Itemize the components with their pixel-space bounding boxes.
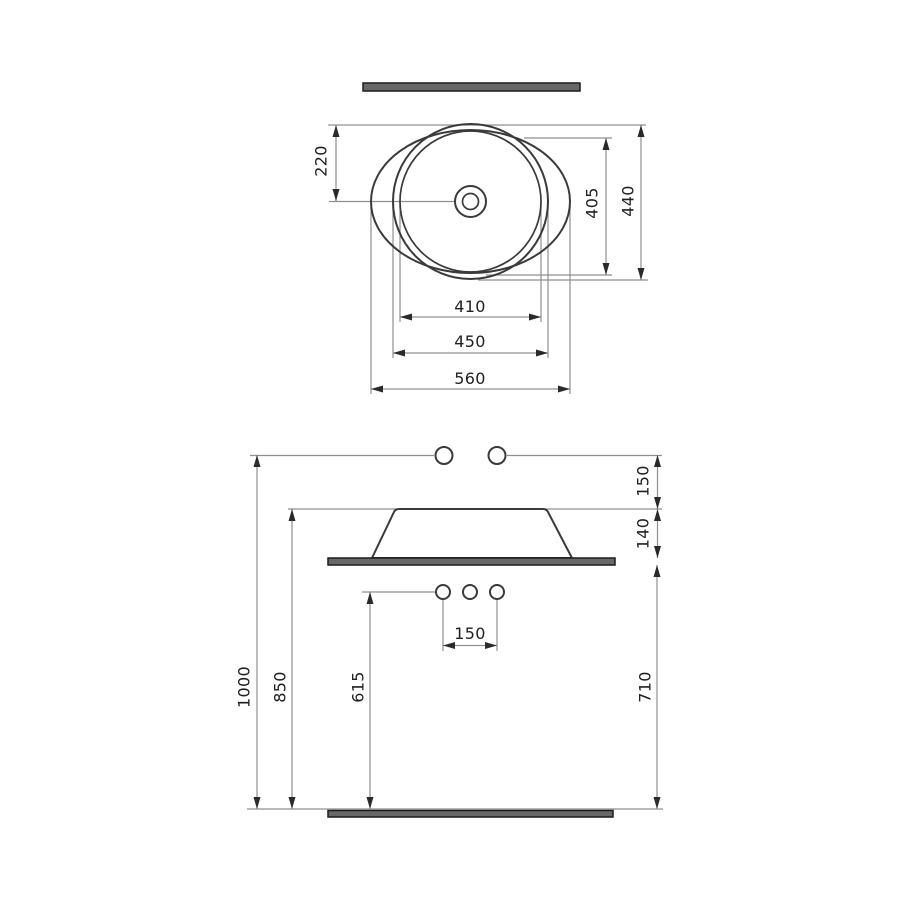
- drain-hole: [463, 194, 479, 210]
- floor-bar: [328, 811, 613, 818]
- dim-label-560: 560: [454, 369, 485, 388]
- tap-hole-center: [463, 585, 477, 599]
- dim-label-1000: 1000: [235, 666, 254, 708]
- washbasin-dimension-drawing: 220 405 440 410: [0, 0, 900, 900]
- technical-drawing-sheet: 220 405 440 410: [0, 0, 900, 900]
- dim-1000: 1000: [235, 455, 261, 809]
- countertop-bar: [328, 558, 615, 565]
- dim-615: 615: [349, 592, 374, 809]
- dim-150-holes: 150: [443, 600, 497, 651]
- dim-label-615: 615: [349, 671, 368, 702]
- basin-profile: [372, 509, 572, 558]
- dim-850: 850: [271, 509, 296, 809]
- dim-440: 440: [478, 125, 648, 280]
- dim-label-440: 440: [619, 185, 638, 216]
- fixing-hole-left: [436, 447, 453, 464]
- dim-140: 140: [634, 509, 662, 558]
- dim-label-150-holes: 150: [454, 624, 485, 643]
- front-view: 1000 850 150 140 710: [235, 447, 664, 817]
- drain-outer-ring: [455, 186, 486, 217]
- wall-bar: [363, 83, 580, 91]
- top-view: 220 405 440 410: [312, 83, 649, 394]
- tap-hole-right: [490, 585, 504, 599]
- dim-label-140: 140: [634, 518, 653, 549]
- dim-label-850: 850: [271, 671, 290, 702]
- dim-label-710: 710: [636, 671, 655, 702]
- dim-label-405: 405: [583, 187, 602, 218]
- dim-label-150-wall: 150: [634, 465, 653, 496]
- dim-label-220: 220: [312, 145, 331, 176]
- tap-hole-left: [436, 585, 450, 599]
- dim-710: 710: [636, 565, 661, 809]
- dim-label-450: 450: [454, 332, 485, 351]
- dim-label-410: 410: [454, 297, 485, 316]
- fixing-hole-right: [489, 447, 506, 464]
